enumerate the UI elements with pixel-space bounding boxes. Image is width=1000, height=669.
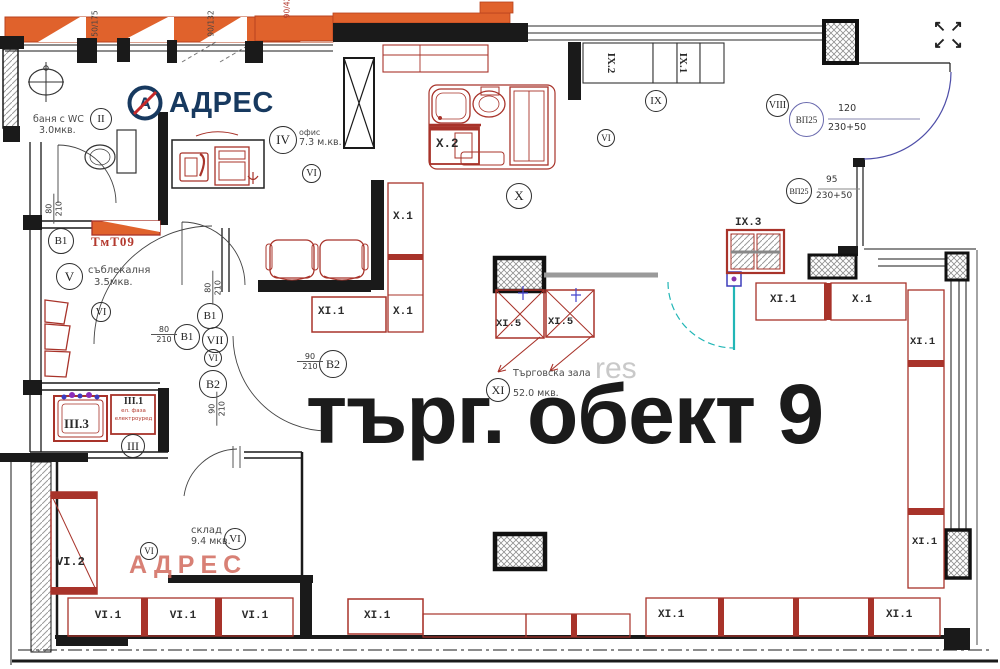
watermark-faint: res <box>595 352 637 386</box>
label-tmt09: ТмТ09 <box>91 234 135 250</box>
room-office-name: офис <box>299 128 320 137</box>
marker-iii: III <box>121 434 145 458</box>
window-vp25-large: ВП25 <box>789 102 824 137</box>
door-b1-mid-upper: B1 <box>197 303 223 329</box>
dim-b2-mid: 90210 <box>207 392 226 426</box>
room-storage-marker-small: VI <box>140 542 158 560</box>
room-dressing-area: 3.5мкв. <box>94 277 133 288</box>
logo: А АДРЕС <box>126 84 274 122</box>
marker-vi-office: VI <box>302 164 321 183</box>
marker-x: X <box>506 183 532 209</box>
label-xi1-rightshelf-bottom: XI.1 <box>912 536 937 548</box>
label-xi1-bottom-right1: XI.1 <box>658 609 684 621</box>
label-x1-topright: X.1 <box>852 294 872 306</box>
label-iii3: III.3 <box>64 416 89 432</box>
marker-ix: IX <box>645 90 667 112</box>
label-ix2: IX.2 <box>605 53 617 73</box>
dim-b1-topleft: 80210 <box>44 194 63 224</box>
label-vi1-1: VI.1 <box>88 610 128 622</box>
dim-b1-mid-lower: 80210 <box>151 325 177 344</box>
label-iii1-note1: ел. фаза <box>112 408 155 414</box>
marker-vi-corridor: VI <box>204 349 222 367</box>
dim-vp1-height: 230+50 <box>828 122 866 133</box>
counters-group <box>583 43 724 83</box>
room-storage-marker: VI <box>224 528 246 550</box>
label-vi1-3: VI.1 <box>235 610 275 622</box>
label-xi1-bottom-right2: XI.1 <box>886 609 912 621</box>
dim-vp2-height: 230+50 <box>816 191 852 201</box>
label-xi1-topright: XI.1 <box>770 294 796 306</box>
dim-b1-mid-upper: 80210 <box>203 271 222 305</box>
room-bath-area: 3.0мкв. <box>39 125 76 136</box>
label-vi2: VI.2 <box>56 555 85 569</box>
logo-a-icon: А <box>126 84 164 122</box>
room-office-area: 7.3 м.кв. <box>299 137 342 148</box>
label-iii1-note2: електроуред <box>112 416 155 422</box>
dim-vp2-width: 95 <box>826 175 837 185</box>
arrow-se-icon: ↘ <box>948 35 965 52</box>
room-bath-marker: II <box>90 108 112 130</box>
window-vp25-small: ВП25 <box>786 178 812 204</box>
room-bath-name: баня с WC <box>33 114 84 125</box>
label-ix3: IX.3 <box>735 217 761 229</box>
label-iii1: III.1 <box>112 396 155 407</box>
dim-b2-right: 90210 <box>297 352 323 371</box>
label-x2: X.2 <box>436 137 459 151</box>
room-dressing-marker: V <box>56 263 83 290</box>
door-b1-mid-lower: B1 <box>174 324 200 350</box>
label-xi5-right: XI.5 <box>548 316 573 328</box>
expand-arrows-icon: ↖ ↗ ↙ ↘ <box>931 18 965 52</box>
arrow-ne-icon: ↗ <box>948 18 965 35</box>
room-dressing-name: съблекалня <box>88 265 150 276</box>
unit-title: търг. обект 9 <box>306 370 823 458</box>
room-hall-area: 52.0 мкв. <box>513 388 559 399</box>
room-office-marker: IV <box>269 126 297 154</box>
columns-group <box>495 21 970 578</box>
label-vi1-2: VI.1 <box>163 610 203 622</box>
logo-text: АДРЕС <box>169 87 274 120</box>
label-xi1-rightshelf-top: XI.1 <box>910 336 935 348</box>
marker-vi-dressing: VI <box>91 302 111 322</box>
door-b2-right: B2 <box>319 350 347 378</box>
dim-window-3: 90/42 <box>282 0 291 18</box>
marker-viii: VIII <box>766 94 789 117</box>
label-xi5-left: XI.5 <box>496 318 521 330</box>
dim-window-1: 50/175 <box>91 10 100 36</box>
room-hall-marker: XI <box>486 378 510 402</box>
room-hall-name: Търговска зала <box>513 368 591 379</box>
label-ix1: IX.1 <box>677 53 689 73</box>
dim-window-2: 90/132 <box>207 10 216 36</box>
label-x1-strip-top: X.1 <box>393 211 413 223</box>
arrow-nw-icon: ↖ <box>931 18 948 35</box>
floorplan-page: А АДРЕС търг. обект 9 АДРЕС res ↖ ↗ ↙ ↘ … <box>0 0 1000 669</box>
room-storage-name: склад <box>191 525 222 536</box>
marker-vi-hall: VI <box>597 129 615 147</box>
label-x1-strip-bottom: X.1 <box>393 306 413 318</box>
arrow-sw-icon: ↙ <box>931 35 948 52</box>
label-xi1-midleft: XI.1 <box>318 306 344 318</box>
label-xi1-bottom-mid: XI.1 <box>364 610 390 622</box>
door-b1-topleft: B1 <box>48 228 74 254</box>
dim-vp1-width: 120 <box>838 103 856 114</box>
